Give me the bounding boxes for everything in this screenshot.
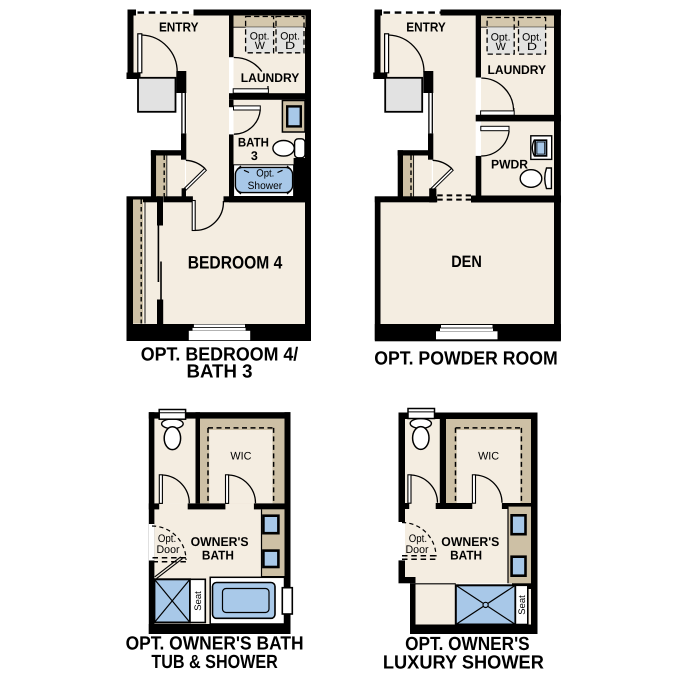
svg-text:Opt.: Opt. — [409, 533, 427, 545]
svg-text:3: 3 — [251, 149, 258, 163]
svg-text:LAUNDRY: LAUNDRY — [488, 63, 547, 77]
svg-text:W: W — [496, 41, 506, 53]
svg-text:OPT. POWDER ROOM: OPT. POWDER ROOM — [374, 348, 557, 369]
svg-text:Shower: Shower — [248, 180, 283, 192]
svg-text:Opt.: Opt. — [256, 168, 274, 180]
svg-text:Door: Door — [157, 544, 180, 556]
svg-text:D: D — [527, 41, 538, 53]
svg-text:W: W — [255, 40, 265, 52]
svg-text:DEN: DEN — [451, 253, 482, 271]
svg-text:Opt.: Opt. — [158, 533, 176, 545]
svg-text:Seat: Seat — [517, 595, 528, 615]
svg-text:D: D — [285, 40, 296, 52]
svg-text:Seat: Seat — [193, 591, 204, 611]
svg-text:ENTRY: ENTRY — [406, 20, 446, 35]
svg-text:Door: Door — [406, 544, 429, 556]
svg-text:LAUNDRY: LAUNDRY — [241, 71, 300, 85]
svg-text:WIC: WIC — [230, 450, 251, 462]
svg-text:BATH: BATH — [238, 135, 269, 149]
svg-text:BATH: BATH — [450, 548, 482, 563]
svg-text:WIC: WIC — [478, 450, 499, 462]
svg-text:BATH: BATH — [202, 548, 234, 563]
svg-text:ENTRY: ENTRY — [159, 20, 199, 35]
svg-text:TUB & SHOWER: TUB & SHOWER — [151, 652, 278, 673]
svg-text:BEDROOM 4: BEDROOM 4 — [188, 252, 283, 272]
svg-text:BATH 3: BATH 3 — [187, 361, 253, 382]
svg-text:LUXURY SHOWER: LUXURY SHOWER — [383, 652, 544, 673]
svg-text:PWDR: PWDR — [491, 158, 528, 172]
